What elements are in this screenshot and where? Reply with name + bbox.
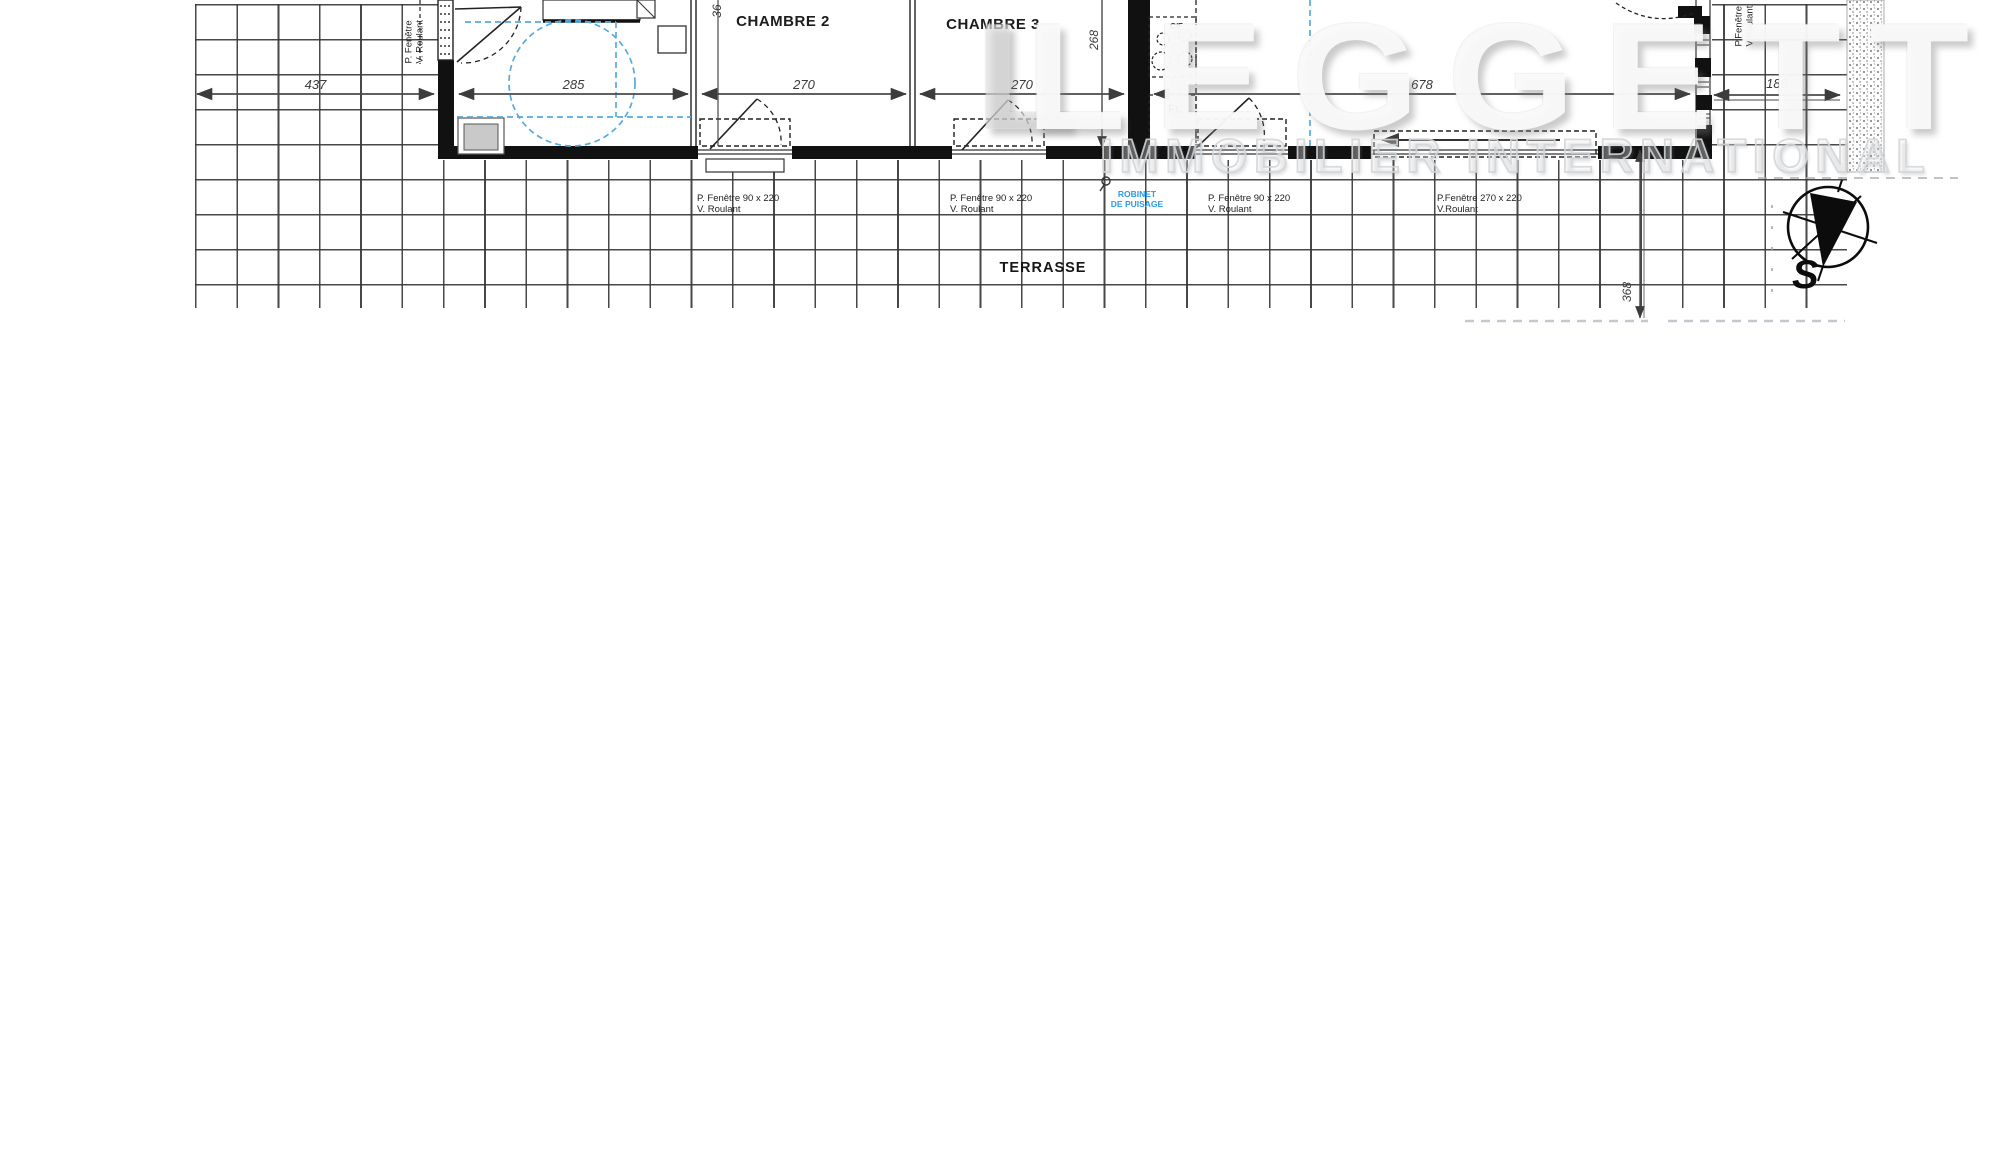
- robinet-line2: DE PUISAGE: [1096, 199, 1178, 209]
- window-label-1: P. Fenêtre 90 x 220 V. Roulant: [697, 193, 779, 215]
- leggett-watermark-subtitle: IMMOBILIER INTERNATIONAL: [1100, 132, 1931, 180]
- window-label-west-type: P. Fenêtre: [405, 0, 416, 64]
- window-label-4-type: P.Fenêtre 270 x 220: [1437, 193, 1522, 204]
- robinet-line1: ROBINET: [1096, 189, 1178, 199]
- dim-270-chambre2: 270: [702, 77, 906, 92]
- window-label-1-shutter: V. Roulant: [697, 204, 779, 215]
- window-label-3-shutter: V. Roulant: [1208, 204, 1290, 215]
- window-label-2: P. Fenêtre 90 x 220 V. Roulant: [950, 193, 1032, 215]
- dim-437: 437: [197, 77, 434, 92]
- floor-plan-page: CHAMBRE 2 CHAMBRE 3 437 285 270 270 678 …: [0, 0, 2006, 1164]
- dim-36: 36: [710, 0, 724, 26]
- window-label-3-type: P. Fenêtre 90 x 220: [1208, 193, 1290, 204]
- compass-south-letter: S: [1792, 253, 1819, 298]
- window-label-1-type: P. Fenêtre 90 x 220: [697, 193, 779, 204]
- dim-368-terrace: 368: [1620, 274, 1634, 310]
- window-label-4: P.Fenêtre 270 x 220 V.Roulant: [1437, 193, 1522, 215]
- window-label-2-shutter: V. Roulant: [950, 204, 1032, 215]
- window-sill: [706, 159, 784, 172]
- window-hatch: [440, 6, 451, 54]
- window-label-2-type: P. Fenêtre 90 x 220: [950, 193, 1032, 204]
- window-label-3: P. Fenêtre 90 x 220 V. Roulant: [1208, 193, 1290, 215]
- window-label-west: P. Fenêtre V. Roulant: [405, 0, 426, 64]
- terrasse-label: TERRASSE: [988, 260, 1098, 276]
- window-label-west-shutter: V. Roulant: [415, 0, 426, 64]
- dim-285: 285: [459, 77, 688, 92]
- boundary-dashes: [1465, 178, 1958, 321]
- room-label-chambre2: CHAMBRE 2: [712, 13, 854, 30]
- window-label-4-shutter: V.Roulant: [1437, 204, 1522, 215]
- robinet-de-puisage-note: ROBINET DE PUISAGE: [1096, 189, 1178, 209]
